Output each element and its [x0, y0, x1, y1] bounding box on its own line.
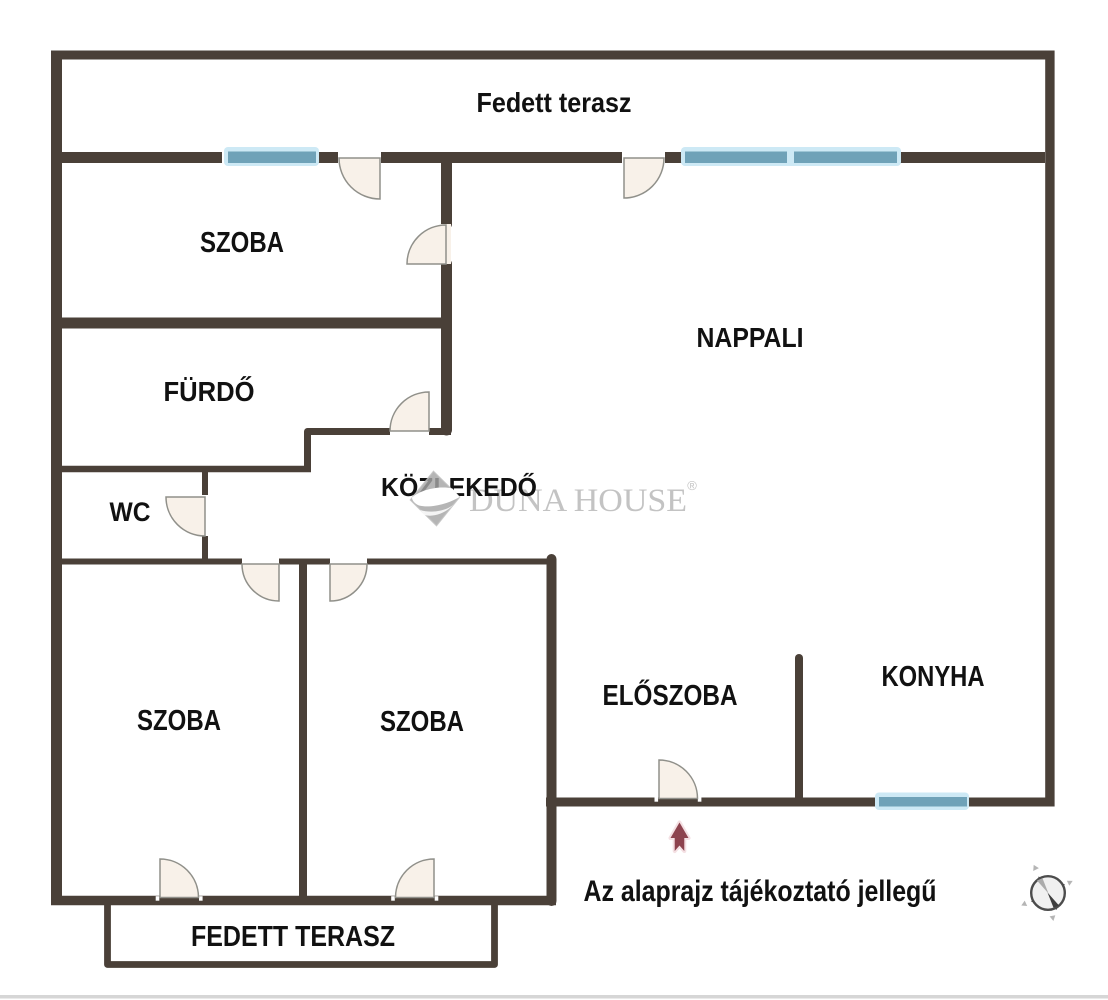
svg-text:Fedett terasz: Fedett terasz	[477, 87, 632, 118]
svg-text:FÜRDŐ: FÜRDŐ	[164, 376, 255, 407]
svg-text:Az alaprajz tájékoztató jelleg: Az alaprajz tájékoztató jellegű	[584, 875, 937, 908]
svg-text:SZOBA: SZOBA	[200, 227, 284, 259]
svg-text:®: ®	[687, 478, 697, 493]
svg-text:KONYHA: KONYHA	[882, 661, 985, 693]
svg-text:NAPPALI: NAPPALI	[697, 322, 804, 353]
svg-text:FEDETT TERASZ: FEDETT TERASZ	[191, 921, 395, 953]
svg-text:ELŐSZOBA: ELŐSZOBA	[603, 678, 738, 712]
svg-text:WC: WC	[110, 497, 151, 527]
svg-text:SZOBA: SZOBA	[380, 706, 464, 738]
svg-text:SZOBA: SZOBA	[137, 705, 221, 737]
